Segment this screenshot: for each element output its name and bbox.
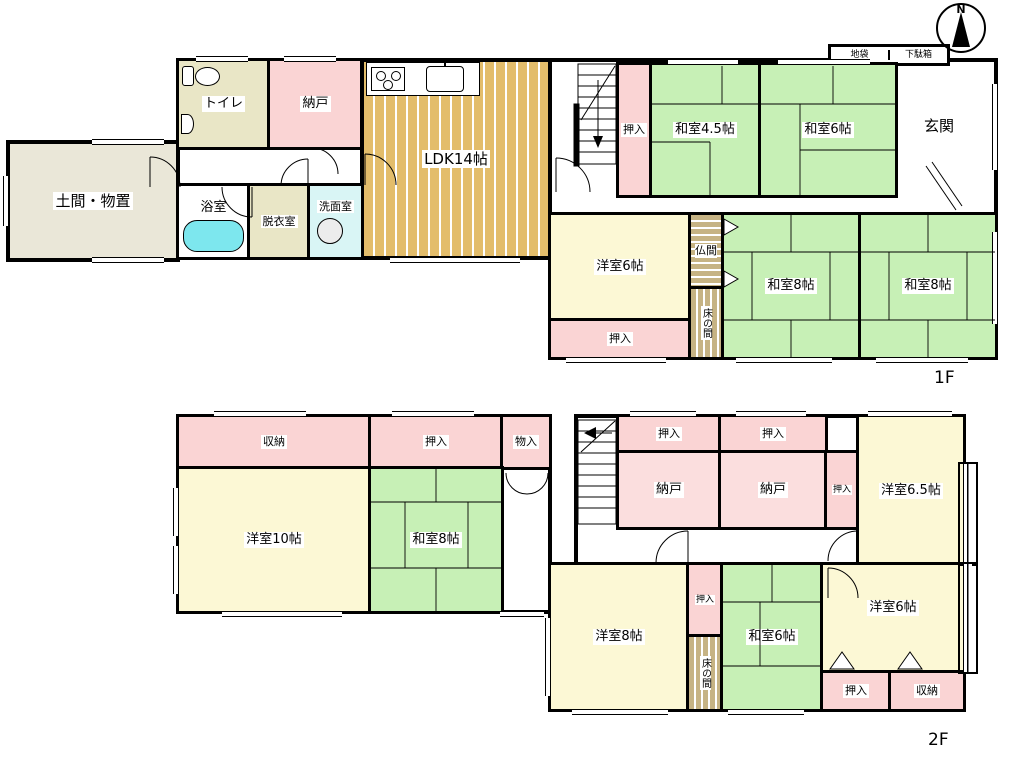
room-yoshitsu8: 洋室8帖 xyxy=(548,562,690,712)
room-nando-b-2f-label: 納戸 xyxy=(758,482,788,498)
floorplan-canvas: N 地袋 下駄箱 土間・物置 トイレ 納戸 LDK14帖 浴室 脱衣室 洗面室 xyxy=(0,0,1028,761)
kitchen-sink-icon xyxy=(426,66,464,92)
room-washitsu8-2f-label: 和室8帖 xyxy=(410,532,461,548)
room-doma-label: 土間・物置 xyxy=(53,192,132,210)
room-bathroom-label: 浴室 xyxy=(198,200,228,216)
room-nando-b-2f: 納戸 xyxy=(718,450,828,530)
window xyxy=(736,357,832,363)
room-yoshitsu65: 洋室6.5帖 xyxy=(856,414,966,568)
window xyxy=(736,411,806,417)
room-tokonoma-1f-label: 床の間 xyxy=(701,306,712,340)
window xyxy=(566,357,666,363)
room-oshiire-a-2f: 押入 xyxy=(616,414,722,454)
room-oshiire-bottom-2f-label: 押入 xyxy=(843,684,869,697)
room-oshiire-south-1f: 押入 xyxy=(548,318,692,360)
toilet-tank-icon xyxy=(182,66,194,86)
window xyxy=(868,411,952,417)
room-oshiire-bottom-2f: 押入 xyxy=(820,670,892,712)
room-monoire-2f-label: 物入 xyxy=(513,435,539,448)
window xyxy=(992,84,998,170)
window xyxy=(668,59,738,65)
window xyxy=(3,176,9,226)
room-tokonoma-2f-label: 床の間 xyxy=(700,656,711,690)
getabako-label: 下駄箱 xyxy=(888,50,947,61)
room-oshiire-top-2f: 押入 xyxy=(368,414,504,470)
faucet-icon xyxy=(444,60,446,67)
room-washitsu8-west: 和室8帖 xyxy=(721,212,861,360)
room-washitsu8-east: 和室8帖 xyxy=(858,212,998,360)
room-yoshitsu6-1f-label: 洋室6帖 xyxy=(594,259,645,275)
room-shuno-top-2f: 収納 xyxy=(176,414,372,470)
window xyxy=(728,709,804,715)
room-yoshitsu10: 洋室10帖 xyxy=(176,466,372,614)
floor1-tag: 1F xyxy=(934,368,955,388)
room-yoshitsu6-2f: 洋室6帖 xyxy=(820,562,966,674)
room-oshiire-side-2f-label: 押入 xyxy=(832,485,852,496)
window-column-lower xyxy=(958,562,978,674)
washbasin-icon xyxy=(317,218,343,244)
room-nando-1f: 納戸 xyxy=(267,58,364,150)
room-washitsu8-east-label: 和室8帖 xyxy=(902,278,953,294)
room-oshiire-south-1f-label: 押入 xyxy=(607,332,633,345)
window xyxy=(173,546,179,594)
room-toilet-label: トイレ xyxy=(202,96,245,112)
room-washitsu8-west-label: 和室8帖 xyxy=(765,278,816,294)
compass-north-label: N xyxy=(956,3,965,16)
stove-icon xyxy=(371,67,405,91)
window xyxy=(778,59,870,65)
window xyxy=(545,618,551,696)
room-dressing: 脱衣室 xyxy=(247,183,311,260)
window xyxy=(572,709,668,715)
toilet-bowl-icon xyxy=(195,67,220,86)
room-doma-monooki: 土間・物置 xyxy=(6,140,180,262)
room-washitsu6-2f: 和室6帖 xyxy=(720,562,824,712)
window xyxy=(173,488,179,536)
room-ldk-label: LDK14帖 xyxy=(422,150,490,168)
window-column-upper xyxy=(958,462,978,566)
room-washitsu6-2f-label: 和室6帖 xyxy=(746,629,797,645)
window xyxy=(992,232,998,324)
window xyxy=(214,411,306,417)
window xyxy=(876,357,968,363)
room-oshiire-stair-1f: 押入 xyxy=(616,62,652,198)
room-monoire-2f: 物入 xyxy=(500,414,552,470)
room-yoshitsu10-label: 洋室10帖 xyxy=(244,532,304,548)
room-nando-a-2f: 納戸 xyxy=(616,450,722,530)
room-oshiire-side-2f: 押入 xyxy=(824,450,860,530)
window xyxy=(392,411,474,417)
room-washitsu45: 和室4.5帖 xyxy=(649,62,761,198)
toilet-handwash-icon xyxy=(181,114,194,134)
room-washroom-label: 洗面室 xyxy=(317,200,354,213)
room-shuno-top-2f-label: 収納 xyxy=(261,435,287,448)
room-butsuma: 仏間 xyxy=(688,212,724,290)
room-washitsu6-1f-label: 和室6帖 xyxy=(802,122,853,138)
room-oshiire-small-2f-label: 押入 xyxy=(695,595,715,606)
window xyxy=(92,257,164,263)
room-genkan-label: 玄関 xyxy=(922,117,956,135)
room-oshiire-a-2f-label: 押入 xyxy=(656,427,682,440)
room-washitsu45-label: 和室4.5帖 xyxy=(673,122,737,138)
room-butsuma-label: 仏間 xyxy=(695,244,717,257)
window xyxy=(284,56,336,62)
compass-needle-icon xyxy=(952,12,970,47)
window xyxy=(500,611,544,617)
room-tokonoma-2f: 床の間 xyxy=(686,634,724,712)
window xyxy=(92,139,164,145)
window xyxy=(222,611,342,617)
room-oshiire-top-2f-label: 押入 xyxy=(423,435,449,448)
room-yoshitsu8-label: 洋室8帖 xyxy=(593,629,644,645)
window xyxy=(196,56,248,62)
room-yoshitsu65-label: 洋室6.5帖 xyxy=(879,483,943,499)
room-shuno-bottom-2f: 収納 xyxy=(888,670,966,712)
room-oshiire-b-2f-label: 押入 xyxy=(760,427,786,440)
room-tokonoma-1f: 床の間 xyxy=(688,286,724,360)
room-washitsu8-2f: 和室8帖 xyxy=(368,466,504,614)
room-yoshitsu6-1f: 洋室6帖 xyxy=(548,212,692,322)
room-yoshitsu6-2f-label: 洋室6帖 xyxy=(867,600,918,616)
room-oshiire-small-2f: 押入 xyxy=(686,562,724,638)
room-oshiire-stair-1f-label: 押入 xyxy=(621,123,647,136)
floor2-tag: 2F xyxy=(928,730,949,750)
window xyxy=(630,411,696,417)
room-nando-a-2f-label: 納戸 xyxy=(654,482,684,498)
bathtub-icon xyxy=(183,220,244,252)
room-shuno-bottom-2f-label: 収納 xyxy=(914,684,940,697)
room-washitsu6-1f: 和室6帖 xyxy=(758,62,898,198)
room-oshiire-b-2f: 押入 xyxy=(718,414,828,454)
room-dressing-label: 脱衣室 xyxy=(261,215,298,228)
window xyxy=(390,257,520,263)
room-nando-1f-label: 納戸 xyxy=(300,96,330,112)
compass-icon: N xyxy=(936,3,986,53)
